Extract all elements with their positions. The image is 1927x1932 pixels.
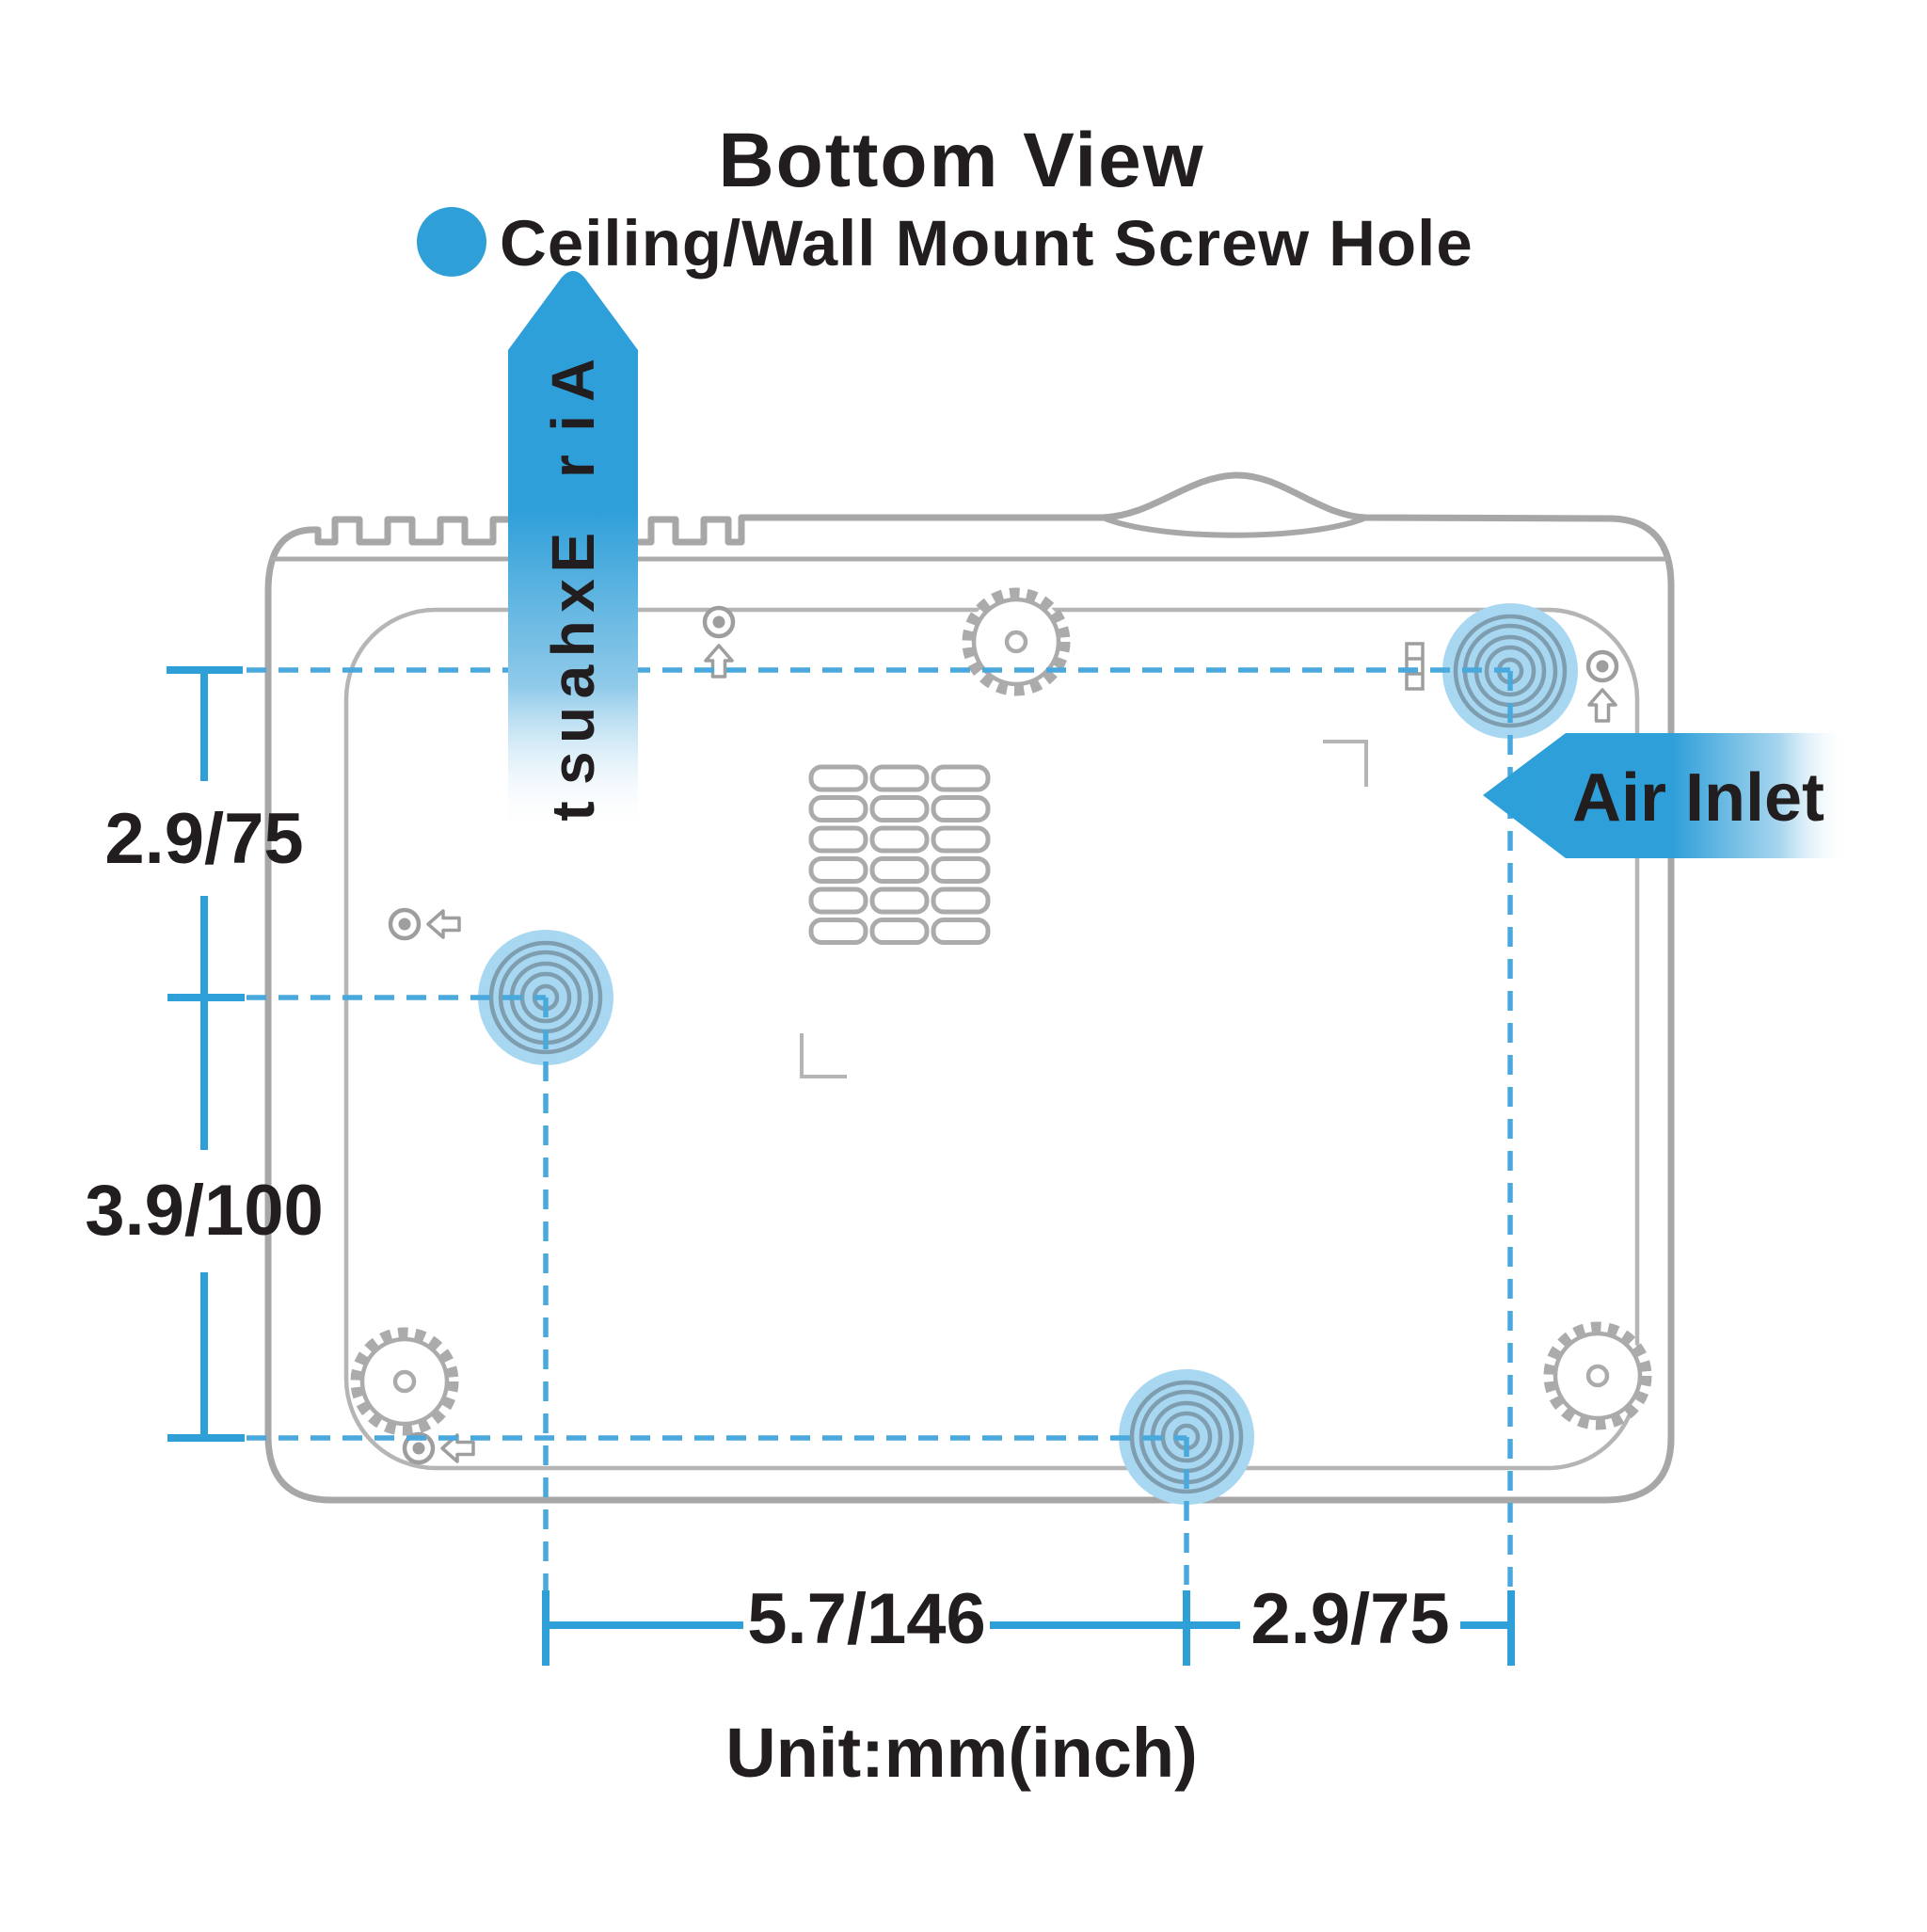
legend-screw-hole-dot [417, 207, 486, 277]
legend: Ceiling/Wall Mount Screw Hole [417, 207, 1473, 279]
air-exhaust-arrow: AirExhaust [508, 271, 638, 832]
svg-text:r: r [539, 455, 607, 478]
bottom-view-diagram: Bottom View Ceiling/Wall Mount Screw Hol… [0, 0, 1927, 1927]
dim-left-top: 2.9/75 [104, 799, 303, 879]
dim-bottom-left: 5.7/146 [747, 1579, 986, 1659]
foot-gear-bottom-left [356, 1333, 454, 1430]
svg-text:x: x [539, 579, 607, 613]
page-title: Bottom View [718, 118, 1204, 203]
svg-text:A: A [539, 359, 607, 402]
svg-text:E: E [539, 533, 607, 573]
air-exhaust-label: AirExhaust [539, 359, 607, 822]
unit-note: Unit:mm(inch) [725, 1714, 1198, 1792]
legend-label: Ceiling/Wall Mount Screw Hole [500, 207, 1473, 279]
svg-text:h: h [539, 620, 607, 657]
foot-gear-bottom-right [1549, 1327, 1647, 1425]
screw-icon [390, 910, 419, 938]
screw-icon [1588, 652, 1616, 680]
svg-text:a: a [539, 664, 607, 698]
svg-text:u: u [539, 707, 607, 743]
svg-text:s: s [539, 751, 607, 785]
screw-icon [705, 608, 733, 636]
latch-detail [1407, 644, 1423, 689]
dim-left-bottom: 3.9/100 [85, 1171, 324, 1251]
foot-gear-top [967, 593, 1065, 691]
dim-bottom-right: 2.9/75 [1250, 1579, 1449, 1659]
bottom-view-page: Bottom View Ceiling/Wall Mount Screw Hol… [0, 0, 1927, 1927]
svg-text:t: t [539, 801, 607, 821]
svg-text:i: i [539, 415, 607, 432]
air-inlet-label: Air Inlet [1572, 760, 1824, 836]
